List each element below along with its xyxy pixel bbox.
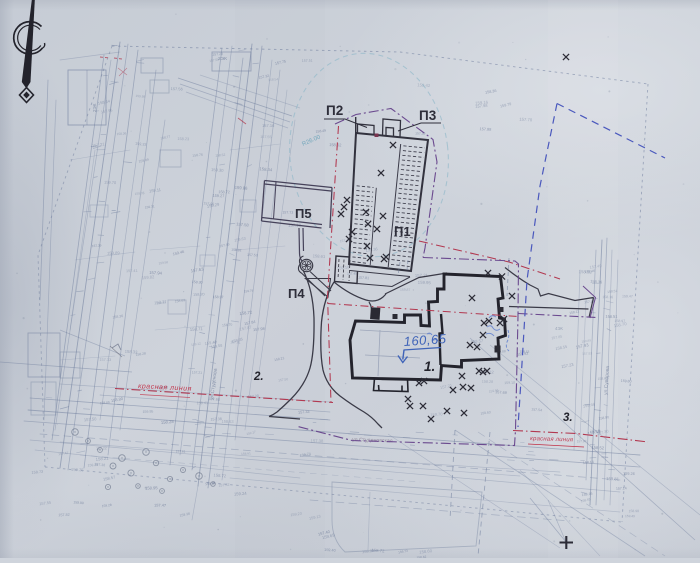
svg-text:159.18: 159.18 bbox=[504, 381, 515, 385]
svg-text:159.49: 159.49 bbox=[625, 514, 635, 518]
svg-text:2ЭК: 2ЭК bbox=[218, 56, 227, 62]
svg-text:157.21: 157.21 bbox=[192, 370, 203, 374]
svg-text:157.13: 157.13 bbox=[99, 358, 111, 362]
svg-text:159.47: 159.47 bbox=[622, 294, 633, 298]
svg-text:1.: 1. bbox=[424, 359, 435, 374]
svg-text:158.28: 158.28 bbox=[161, 419, 175, 425]
svg-text:157.38: 157.38 bbox=[210, 417, 222, 422]
svg-text:159.24: 159.24 bbox=[234, 491, 248, 497]
svg-text:159.27: 159.27 bbox=[212, 193, 224, 198]
svg-text:157.73: 157.73 bbox=[282, 210, 293, 214]
svg-text:158.52: 158.52 bbox=[591, 445, 605, 451]
svg-text:157.88: 157.88 bbox=[479, 127, 491, 132]
svg-text:158.20: 158.20 bbox=[193, 292, 205, 297]
svg-text:160,65: 160,65 bbox=[403, 331, 447, 349]
svg-text:157.53: 157.53 bbox=[247, 253, 258, 258]
svg-text:157.45: 157.45 bbox=[347, 271, 357, 275]
svg-text:158.62: 158.62 bbox=[329, 142, 342, 148]
svg-text:157.51: 157.51 bbox=[302, 59, 313, 63]
svg-text:П2: П2 bbox=[326, 103, 343, 118]
svg-text:159.30: 159.30 bbox=[211, 167, 224, 173]
svg-text:157.56: 157.56 bbox=[171, 86, 183, 91]
svg-text:158.63: 158.63 bbox=[221, 419, 234, 424]
svg-text:158.23: 158.23 bbox=[177, 137, 189, 141]
svg-text:158.61: 158.61 bbox=[313, 253, 327, 259]
svg-text:159.70: 159.70 bbox=[430, 411, 443, 417]
svg-text:П5: П5 bbox=[295, 206, 312, 221]
svg-text:158.72: 158.72 bbox=[213, 473, 227, 479]
svg-text:158.97: 158.97 bbox=[213, 295, 224, 299]
svg-text:158.95: 158.95 bbox=[145, 485, 158, 490]
svg-text:159.25: 159.25 bbox=[71, 467, 85, 472]
svg-text:157.41: 157.41 bbox=[126, 269, 138, 273]
svg-text:159.29: 159.29 bbox=[88, 463, 99, 468]
svg-text:157.94: 157.94 bbox=[149, 270, 163, 276]
svg-text:157.38: 157.38 bbox=[311, 438, 324, 443]
svg-text:159.95: 159.95 bbox=[418, 280, 432, 286]
svg-text:159.80: 159.80 bbox=[621, 379, 632, 384]
svg-text:159.95: 159.95 bbox=[142, 409, 153, 414]
svg-text:158.98: 158.98 bbox=[629, 509, 640, 513]
svg-text:159.87: 159.87 bbox=[400, 288, 410, 292]
svg-text:3.: 3. bbox=[563, 412, 573, 424]
svg-text:158.28: 158.28 bbox=[482, 380, 493, 384]
svg-text:157.90: 157.90 bbox=[577, 439, 587, 443]
svg-text:159.42: 159.42 bbox=[417, 82, 431, 88]
svg-text:157.82: 157.82 bbox=[58, 513, 70, 518]
svg-text:157.69: 157.69 bbox=[495, 389, 507, 395]
svg-text:157.81: 157.81 bbox=[358, 276, 369, 281]
svg-text:159.70: 159.70 bbox=[104, 180, 117, 186]
svg-text:159.40: 159.40 bbox=[324, 548, 336, 553]
svg-text:158.61: 158.61 bbox=[241, 451, 251, 456]
svg-text:2.: 2. bbox=[253, 371, 264, 383]
svg-text:158.36: 158.36 bbox=[117, 131, 127, 136]
svg-text:157.47: 157.47 bbox=[154, 503, 166, 508]
svg-text:158.53: 158.53 bbox=[519, 350, 529, 354]
svg-text:159.86: 159.86 bbox=[235, 185, 249, 191]
svg-text:157.14: 157.14 bbox=[616, 486, 627, 490]
svg-text:157.55: 157.55 bbox=[260, 135, 271, 139]
svg-text:159.81: 159.81 bbox=[606, 476, 620, 481]
svg-text:158.16: 158.16 bbox=[602, 295, 613, 299]
svg-text:П3: П3 bbox=[419, 108, 437, 123]
svg-text:П4: П4 bbox=[288, 286, 305, 301]
svg-text:4ЭК: 4ЭК bbox=[555, 326, 563, 331]
svg-text:П1: П1 bbox=[394, 224, 411, 239]
svg-text:159.26: 159.26 bbox=[623, 472, 635, 476]
svg-text:157.70: 157.70 bbox=[519, 117, 533, 123]
svg-text:157.93: 157.93 bbox=[582, 351, 592, 355]
svg-text:157.50: 157.50 bbox=[84, 416, 98, 422]
svg-text:157.39: 157.39 bbox=[415, 132, 425, 136]
